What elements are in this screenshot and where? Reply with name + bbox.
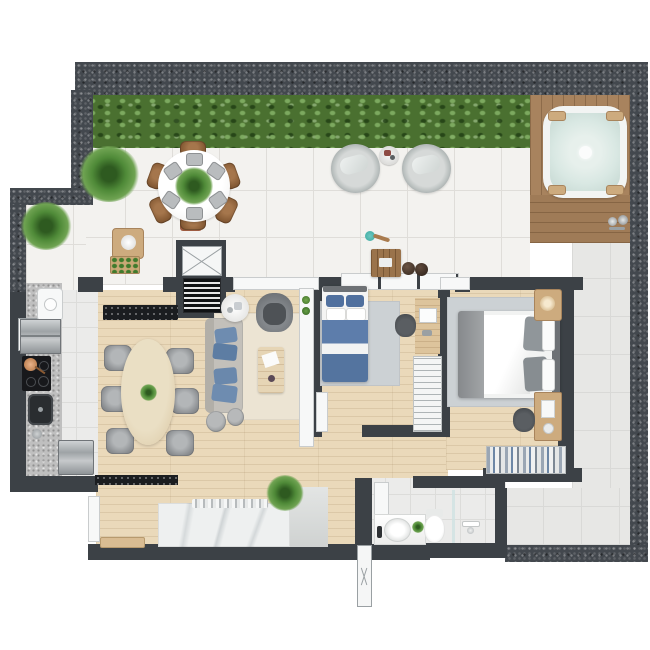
vanity-chair — [513, 408, 535, 432]
placemat — [186, 153, 203, 166]
terrace-side-bench — [112, 228, 144, 259]
double-bed — [458, 311, 560, 398]
sofa-pillow — [213, 367, 237, 385]
bathroom-vanity — [374, 514, 426, 545]
master-throw — [458, 311, 484, 398]
lounge-chair-2 — [402, 144, 451, 193]
laundry-sink — [37, 288, 63, 321]
placemat — [186, 207, 203, 220]
herb-crate — [110, 256, 140, 274]
dining-chair — [171, 388, 199, 414]
bed1-pillow-blue — [326, 295, 344, 307]
faucet — [377, 526, 382, 538]
wall-kitchen-bottom — [10, 476, 98, 492]
sideboard-plant — [302, 307, 310, 315]
bed1-desk — [415, 298, 440, 354]
staircase — [183, 278, 221, 313]
toilet — [424, 509, 445, 545]
kitchen-drain — [32, 429, 42, 439]
bed1-wardrobe — [413, 356, 442, 432]
dark-pouf-2 — [415, 263, 428, 276]
round-basin — [384, 518, 411, 542]
kitchen-sink — [28, 394, 53, 425]
steel-cabinet — [58, 440, 94, 475]
master-pillow-white — [542, 319, 555, 351]
bathroom-plant — [412, 521, 424, 533]
hot-tub-jet — [579, 146, 592, 159]
refrigerator — [20, 319, 61, 354]
outdoor-shower-fitting — [606, 215, 630, 235]
table-plant — [140, 384, 157, 401]
outer-wall-right — [630, 62, 648, 562]
wall-bathroom-bottom — [420, 543, 507, 558]
shower-glass-divider — [452, 490, 455, 543]
low-wooden-bench — [100, 537, 145, 548]
gray-pouf-2 — [227, 408, 244, 426]
media-sideboard — [299, 288, 314, 447]
shower-fitting — [460, 519, 482, 537]
round-side-table — [221, 294, 249, 322]
bar-bottles-row — [192, 499, 268, 508]
lounge-side-table — [379, 146, 399, 165]
hot-tub-pad — [548, 185, 566, 195]
sofa-pillow — [211, 384, 238, 404]
window-living-southwest — [88, 496, 100, 542]
oval-dining-table — [121, 339, 175, 445]
sideboard-plant — [302, 296, 310, 304]
window-master — [440, 277, 470, 290]
floor-plan-canvas — [0, 0, 650, 650]
potted-plant-2 — [20, 202, 72, 250]
elevator-shaft — [182, 246, 222, 276]
master-pillow-white — [542, 359, 555, 391]
bed1-headboard — [323, 286, 367, 292]
living-coffee-table — [258, 347, 284, 393]
single-bed — [322, 286, 368, 382]
cooktop — [22, 356, 51, 391]
terrace-dining-set — [149, 141, 239, 231]
potted-plant-1 — [78, 146, 140, 202]
vanity-desk — [534, 392, 562, 441]
island-back-counter — [95, 475, 178, 485]
sofa-pillow — [212, 343, 238, 361]
bed1-desk-chair — [395, 314, 416, 337]
wall-bathroom-east — [495, 488, 507, 545]
bed1-pillow-blue — [346, 295, 364, 307]
laptop — [419, 308, 437, 323]
table-lamp — [540, 296, 555, 311]
wall-corridor-bathroom — [413, 476, 505, 488]
swivel-armchair — [256, 293, 293, 332]
hot-tub-pad — [606, 185, 624, 195]
nightstand — [534, 289, 562, 321]
outer-wall-top — [75, 62, 648, 95]
outer-wall-bottom-right — [505, 545, 648, 562]
wall-top-a — [78, 277, 103, 292]
hot-tub-pad — [548, 111, 566, 121]
bed1-door-leaf — [316, 392, 328, 432]
gray-pouf-1 — [206, 411, 226, 432]
bathroom-door-panel — [357, 545, 372, 607]
master-wardrobe — [486, 446, 566, 474]
wall-bathroom-west — [355, 478, 372, 545]
dark-pouf-1 — [402, 262, 415, 275]
sofa — [205, 318, 243, 413]
hot-tub — [543, 106, 627, 198]
lounge-chair-1 — [331, 144, 380, 193]
island-plant — [266, 475, 304, 511]
sofa-pillow — [214, 327, 238, 345]
hot-tub-pad — [606, 111, 624, 121]
kitchen-island — [158, 503, 290, 547]
dining-chair — [166, 430, 194, 456]
bed1-duvet — [322, 320, 368, 382]
terrace-coffee-table — [371, 249, 401, 277]
exterior-walkway-bottom — [505, 488, 630, 545]
sideboard-counter-black — [103, 305, 178, 320]
vase — [121, 235, 136, 250]
master-duvet-fold — [484, 315, 530, 394]
bathroom-wall-shelf — [374, 482, 389, 516]
